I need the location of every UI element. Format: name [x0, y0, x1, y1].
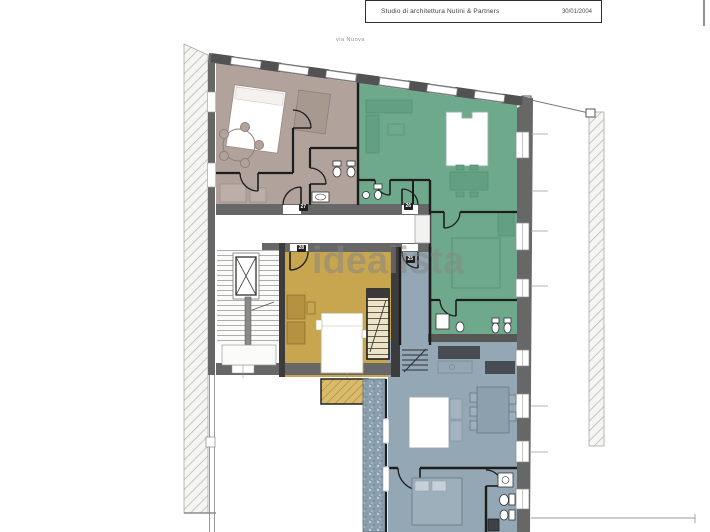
toilet — [500, 495, 509, 506]
stair-yellow-divider — [279, 243, 285, 377]
street-label: via Nuova — [336, 37, 365, 43]
blue-terrace — [363, 379, 389, 532]
architect-studio-name: Studio di architettura Nutini & Partners — [381, 8, 500, 15]
sofa-bed — [409, 397, 462, 448]
double-bed — [446, 112, 488, 166]
title-block: Studio di architettura Nutini & Partners… — [365, 0, 602, 23]
stair-landing — [222, 345, 276, 365]
door-number-tag: 27 — [299, 204, 308, 211]
neighbor-wall-left — [184, 44, 208, 513]
wardrobe — [498, 212, 514, 236]
washbasin — [363, 192, 370, 199]
shower — [436, 314, 449, 329]
bidet — [504, 323, 511, 333]
terrace-door-threshold — [383, 467, 389, 491]
stairwell — [217, 250, 279, 365]
stair-stringer — [245, 297, 251, 345]
dimension-ticks — [531, 134, 548, 452]
dining-table — [470, 387, 516, 433]
door-number-tag: 28 — [297, 245, 306, 252]
bedroom-bed — [412, 478, 462, 525]
boundary-post — [586, 109, 595, 117]
shaft — [415, 215, 430, 243]
washer — [488, 519, 499, 531]
neighbor-wall-right — [589, 112, 604, 446]
elevator — [236, 257, 256, 295]
green-blue-divider — [428, 334, 517, 342]
double-bed — [316, 313, 368, 373]
terrace-door-threshold — [383, 419, 389, 443]
drawing-date: 30/01/2004 — [562, 9, 592, 15]
bidet — [500, 510, 508, 520]
washbasin — [456, 322, 464, 332]
watermark: idealista — [312, 240, 464, 283]
floor-plan-page: Studio di architettura Nutini & Partners… — [0, 0, 710, 532]
door-number-tag: 25 — [406, 256, 415, 263]
door-number-tag: 26 — [404, 203, 413, 210]
property-lines — [522, 0, 704, 523]
yellow-balcony — [321, 379, 368, 404]
toilet — [492, 323, 499, 333]
internal-stair — [367, 289, 389, 359]
